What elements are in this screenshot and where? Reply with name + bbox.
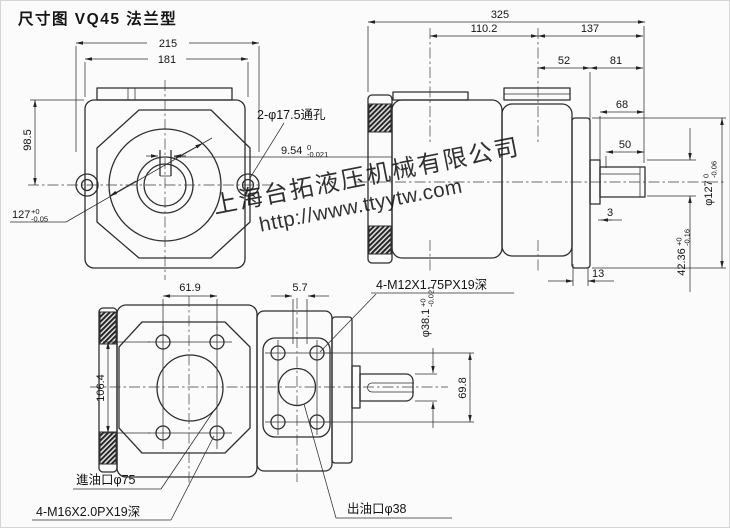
dim-215-label: 215 bbox=[159, 38, 177, 50]
bottom-body-outline bbox=[90, 296, 448, 486]
dim-13-label: 13 bbox=[592, 268, 604, 280]
dim-50: 50 bbox=[606, 139, 644, 168]
label-through-holes: 2-φ17.5通孔 bbox=[250, 108, 326, 178]
dim-181: 181 bbox=[85, 54, 248, 97]
dim-key-width-label: 9.54 bbox=[281, 145, 302, 157]
dim-pilot-127-sub: -0.05 bbox=[31, 215, 48, 224]
outlet-port-label: 出油口φ38 bbox=[347, 502, 407, 516]
dim-key-width-sub: -0.021 bbox=[307, 150, 328, 159]
front-body-outline bbox=[28, 80, 280, 280]
side-view: 325 110.2 137 52 81 68 50 bbox=[356, 9, 726, 292]
dim-325-label: 325 bbox=[491, 9, 509, 21]
dim-3: 3 bbox=[598, 207, 622, 220]
dim-flange-dia-sub: -0.06 bbox=[710, 161, 719, 178]
dim-3-label: 3 bbox=[607, 207, 613, 219]
dim-110-2: 110.2 bbox=[430, 23, 538, 36]
dim-5-7: 5.7 bbox=[271, 282, 329, 344]
dim-98-5: 98.5 bbox=[22, 100, 84, 185]
through-holes-label: 2-φ17.5通孔 bbox=[257, 108, 326, 122]
dim-181-label: 181 bbox=[158, 54, 176, 66]
dim-5-7-label: 5.7 bbox=[292, 282, 307, 294]
dim-52: 52 bbox=[538, 55, 590, 156]
dim-106-4: 106.4 bbox=[95, 342, 150, 433]
dim-key-height-label: 42.36 bbox=[676, 248, 688, 276]
dim-50-label: 50 bbox=[619, 139, 631, 151]
watermark: 上海台拓液压机械有限公司 http://www.ttyytw.com bbox=[211, 134, 522, 237]
dim-137-label: 137 bbox=[581, 23, 599, 35]
dim-68: 68 bbox=[600, 99, 644, 164]
drawing-page: 尺寸图 VQ45 法兰型 215 bbox=[0, 0, 730, 528]
dim-68-label: 68 bbox=[616, 99, 628, 111]
inlet-port-label: 進油口φ75 bbox=[76, 473, 136, 487]
dim-pilot-127-label: 127 bbox=[12, 209, 30, 221]
label-outlet-port: 出油口φ38 bbox=[304, 404, 452, 518]
dim-110-2-label: 110.2 bbox=[471, 23, 498, 35]
side-body-outline bbox=[356, 28, 726, 272]
front-view: 215 181 98.5 127 +0 -0.05 2-φ17.5通孔 bbox=[10, 38, 392, 280]
dim-pilot-127: 127 +0 -0.05 bbox=[10, 138, 212, 224]
label-outlet-thread: 4-M12X1.75PX19深 bbox=[320, 278, 514, 352]
dim-69-8: 69.8 bbox=[325, 353, 474, 422]
drawing-canvas: 尺寸图 VQ45 法兰型 215 bbox=[0, 0, 730, 528]
dim-61-9-label: 61.9 bbox=[179, 282, 200, 294]
dim-key-width: 9.54 0 -0.021 bbox=[146, 143, 392, 159]
dim-81-label: 81 bbox=[610, 55, 622, 67]
dim-81: 81 bbox=[590, 55, 643, 68]
dim-98-5-label: 98.5 bbox=[22, 129, 34, 150]
dim-key-height: 42.36 +0 -0.16 bbox=[647, 128, 696, 292]
dim-61-9: 61.9 bbox=[163, 282, 217, 330]
dim-52-label: 52 bbox=[558, 55, 570, 67]
dim-137: 137 bbox=[538, 23, 643, 36]
dim-106-4-label: 106.4 bbox=[95, 374, 107, 402]
dim-shaft-dia-label: φ38.1 bbox=[420, 309, 432, 338]
dim-flange-dia: φ127 0 -0.06 bbox=[592, 118, 726, 268]
inlet-thread-label: 4-M16X2.0PX19深 bbox=[36, 505, 140, 519]
outlet-thread-label: 4-M12X1.75PX19深 bbox=[376, 278, 487, 292]
dim-13: 13 bbox=[548, 264, 614, 286]
bottom-view: 61.9 5.7 106.4 69.8 bbox=[32, 278, 514, 520]
dim-flange-dia-label: φ127 bbox=[703, 180, 715, 206]
dim-key-height-sub: -0.16 bbox=[683, 229, 692, 246]
dim-shaft-dia: φ38.1 +0 -0.021 bbox=[415, 286, 437, 428]
drawing-title: 尺寸图 VQ45 法兰型 bbox=[18, 9, 177, 28]
dim-69-8-label: 69.8 bbox=[457, 377, 469, 398]
